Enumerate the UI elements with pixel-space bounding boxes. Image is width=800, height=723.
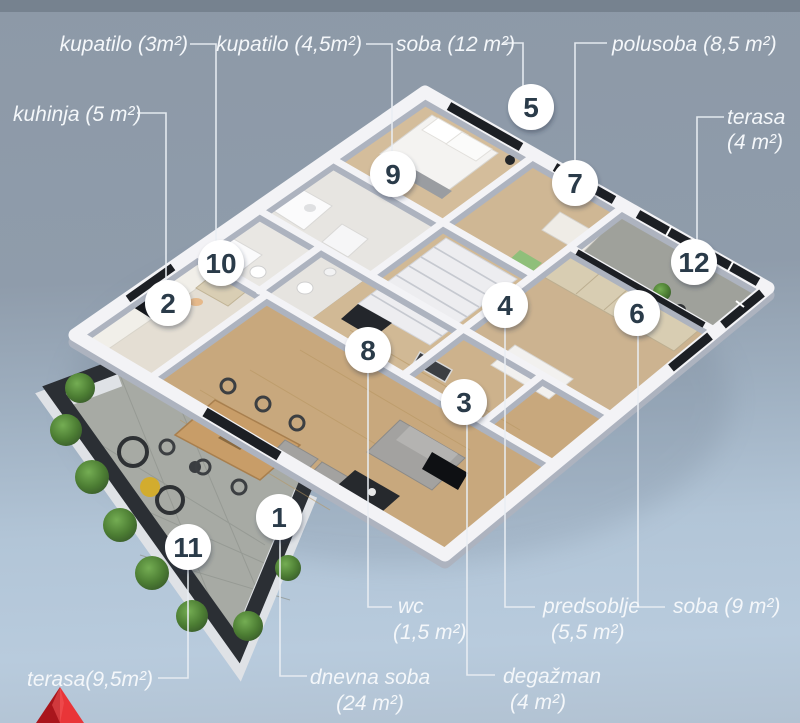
label-soba9: soba (9 m²) — [673, 595, 780, 618]
marker-10-number: 10 — [205, 248, 236, 279]
label-terasa95: terasa(9,5m²) — [27, 668, 153, 691]
marker-3: 3 — [441, 379, 487, 425]
marker-2: 2 — [145, 280, 191, 326]
marker-2-number: 2 — [160, 288, 176, 319]
label-degazman-line1: degažman — [503, 665, 601, 688]
label-wc-line2: (1,5 m²) — [393, 621, 467, 644]
label-soba12: soba (12 m²) — [396, 33, 515, 56]
marker-4: 4 — [482, 282, 528, 328]
marker-11-number: 11 — [173, 532, 203, 563]
marker-5-number: 5 — [523, 92, 539, 123]
marker-7: 7 — [552, 160, 598, 206]
label-terasa4-line2: (4 m²) — [727, 131, 783, 154]
floorplan-svg: 1 2 3 4 5 6 7 — [0, 0, 800, 723]
label-terasa4-line1: terasa — [727, 106, 785, 129]
label-dnevna-line2: (24 m²) — [336, 692, 404, 715]
marker-6: 6 — [614, 290, 660, 336]
label-predsoblje-line1: predsoblje — [542, 595, 640, 618]
marker-9-number: 9 — [385, 159, 401, 190]
marker-11: 11 — [165, 524, 211, 570]
label-wc-line1: wc — [398, 595, 424, 618]
marker-7-number: 7 — [567, 168, 583, 199]
logo-red-pyramid — [36, 687, 84, 723]
marker-1-number: 1 — [271, 502, 287, 533]
label-predsoblje-line2: (5,5 m²) — [551, 621, 625, 644]
label-kupatilo3: kupatilo (3m²) — [60, 33, 188, 56]
label-polusoba: polusoba (8,5 m²) — [611, 33, 777, 56]
marker-4-number: 4 — [497, 290, 513, 321]
marker-5: 5 — [508, 84, 554, 130]
marker-10: 10 — [198, 240, 244, 286]
marker-9: 9 — [370, 151, 416, 197]
floorplan-scene: 1 2 3 4 5 6 7 — [0, 0, 800, 723]
label-kuhinja: kuhinja (5 m²) — [13, 103, 141, 126]
marker-12-number: 12 — [678, 247, 709, 278]
leader-kupatilo3 — [190, 44, 216, 263]
label-degazman-line2: (4 m²) — [510, 691, 566, 714]
marker-12: 12 — [671, 239, 717, 285]
label-dnevna-line1: dnevna soba — [310, 666, 430, 689]
marker-8-number: 8 — [360, 335, 376, 366]
marker-1: 1 — [256, 494, 302, 540]
marker-8: 8 — [345, 327, 391, 373]
marker-3-number: 3 — [456, 387, 472, 418]
marker-6-number: 6 — [629, 298, 645, 329]
label-kupatilo45: kupatilo (4,5m²) — [216, 33, 362, 56]
